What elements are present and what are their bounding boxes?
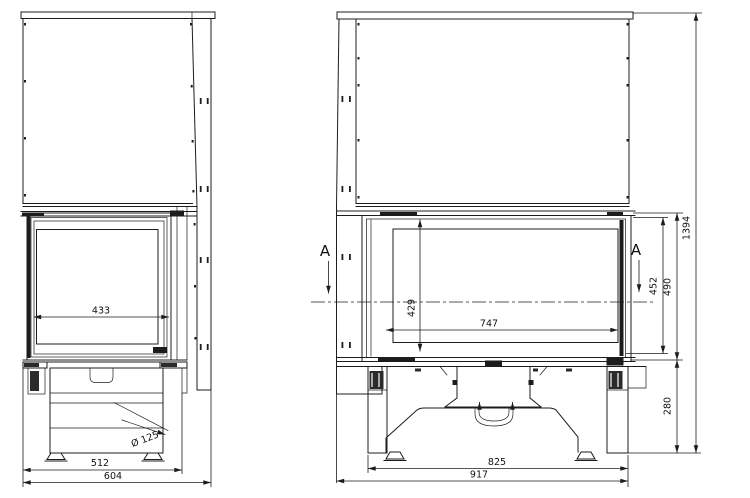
dim-opening-height: 452 (649, 218, 664, 354)
side-base-handle-notch (90, 368, 113, 383)
section-a-left-label: A (320, 242, 331, 260)
side-glass (37, 230, 159, 345)
dim-overall-depth-label: 604 (104, 471, 122, 482)
fireplace-technical-drawing: Ø 125 433 512 604 (0, 0, 750, 498)
front-door-frame (362, 216, 631, 362)
dim-body-width-label: 825 (488, 457, 506, 468)
front-vent-slots (342, 96, 351, 348)
front-rivet-marks (358, 23, 629, 199)
drawing-canvas: Ø 125 433 512 604 (0, 0, 750, 498)
side-back-strip (197, 19, 211, 391)
dim-overall-height-label: 1394 (682, 216, 693, 240)
side-top-cap (21, 12, 215, 19)
dim-plinth-height: 280 (663, 360, 678, 453)
dim-overall-height: 1394 (682, 13, 697, 453)
side-vent-slots (200, 98, 209, 350)
front-view: A A (311, 12, 702, 487)
dim-overall-width: 917 (337, 470, 629, 482)
side-door-latch (153, 347, 167, 353)
dim-flue-diameter-label: Ø 125 (130, 429, 161, 450)
dim-door-height-label: 490 (663, 278, 674, 296)
dim-base-depth-label: 512 (91, 458, 109, 469)
side-upper-panel (23, 19, 197, 208)
dim-door-height: 490 (663, 213, 678, 360)
front-base-arch (384, 408, 597, 461)
section-a-right-label: A (631, 241, 642, 259)
front-top-cap (337, 12, 633, 19)
front-air-duct (440, 367, 547, 409)
side-flue-leader: Ø 125 (114, 403, 168, 450)
front-plinth (368, 367, 646, 454)
section-marker-a-right: A (631, 241, 642, 292)
section-marker-a-left: A (320, 242, 331, 294)
side-view: Ø 125 433 512 604 (21, 12, 215, 487)
dim-front-glass-height: 429 (407, 220, 421, 352)
front-glass (393, 229, 618, 343)
dim-opening-height-label: 452 (649, 277, 660, 295)
dim-front-glass-width: 747 (386, 319, 618, 331)
dim-side-glass-width: 433 (34, 306, 170, 318)
side-door-frame (27, 213, 171, 360)
front-upper-panel (356, 19, 629, 207)
dim-plinth-height-label: 280 (663, 397, 674, 415)
dim-glass-height-label: 429 (407, 299, 418, 317)
dim-overall-depth: 604 (23, 471, 211, 483)
dim-overall-width-label: 917 (470, 470, 488, 481)
dim-side-glass-width-label: 433 (92, 306, 110, 317)
dim-front-glass-width-label: 747 (480, 319, 498, 330)
